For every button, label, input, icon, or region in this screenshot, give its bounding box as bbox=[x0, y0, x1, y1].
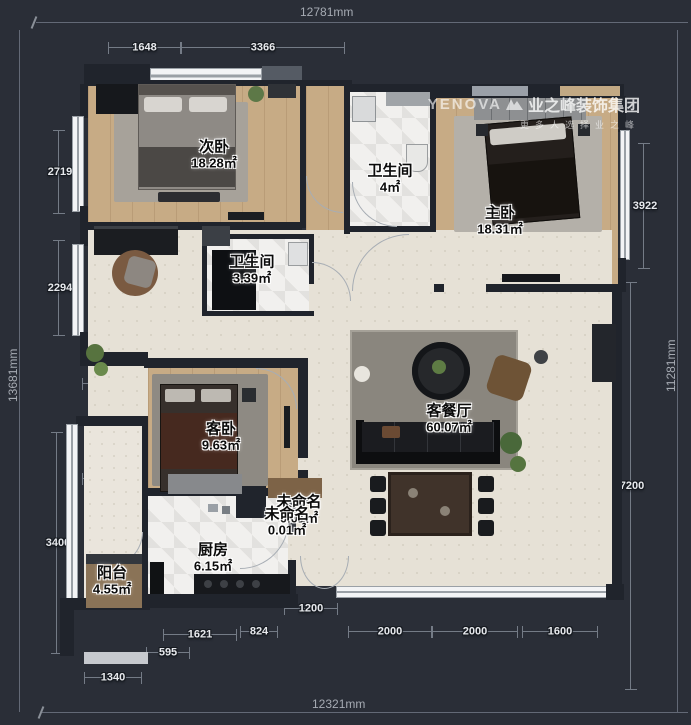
dim-segment[interactable]: 2719 bbox=[58, 130, 59, 214]
wall bbox=[472, 86, 528, 96]
plant[interactable] bbox=[86, 344, 104, 362]
bed-double[interactable] bbox=[138, 84, 236, 190]
dimline-bottom-total bbox=[42, 712, 688, 713]
total-dim-right: 11281mm bbox=[664, 340, 678, 392]
window bbox=[620, 130, 630, 260]
wall bbox=[486, 284, 622, 292]
dining-chair[interactable] bbox=[478, 476, 494, 492]
room-label-bathroom-mid: 卫生间 3.39㎡ bbox=[229, 254, 274, 287]
dim-segment[interactable]: 2000 bbox=[432, 631, 518, 632]
nightstand[interactable] bbox=[578, 124, 590, 136]
wall bbox=[80, 84, 88, 118]
dim-segment[interactable]: 3922 bbox=[643, 143, 644, 269]
room-label-master-bedroom: 主卧 18.31㎡ bbox=[477, 205, 523, 238]
dim-segment[interactable]: 595 bbox=[146, 652, 190, 653]
window bbox=[336, 586, 608, 598]
burner bbox=[204, 580, 212, 588]
dim-segment[interactable]: 3400 bbox=[56, 432, 57, 654]
burner bbox=[220, 580, 228, 588]
tableware bbox=[440, 506, 450, 516]
dim-segment[interactable]: 1600 bbox=[522, 631, 598, 632]
kitchen-item bbox=[222, 506, 230, 514]
floor-lamp[interactable] bbox=[354, 366, 370, 382]
pillow bbox=[201, 389, 231, 402]
sofa-back bbox=[362, 452, 494, 464]
wall bbox=[300, 84, 306, 228]
pillow bbox=[489, 123, 566, 146]
pillow bbox=[144, 97, 182, 112]
bed-bench[interactable] bbox=[158, 192, 220, 202]
tv-unit[interactable] bbox=[284, 406, 290, 448]
wall bbox=[148, 594, 298, 608]
dim-segment[interactable]: 2000 bbox=[348, 631, 432, 632]
wardrobe[interactable] bbox=[168, 474, 242, 494]
nightstand[interactable] bbox=[242, 388, 256, 402]
tableware bbox=[408, 488, 418, 498]
dim-segment[interactable]: 1200 bbox=[284, 608, 338, 609]
plant[interactable] bbox=[94, 362, 108, 376]
nightstand[interactable] bbox=[476, 124, 488, 136]
wall bbox=[560, 86, 620, 96]
pillow bbox=[165, 389, 195, 402]
wardrobe[interactable] bbox=[96, 84, 140, 114]
dimline-top-total bbox=[36, 22, 688, 23]
floorplan-canvas[interactable]: 12781mm 13681mm 11281mm 12321mm 1648 336… bbox=[0, 0, 691, 725]
dresser[interactable] bbox=[268, 84, 296, 98]
plant[interactable] bbox=[248, 86, 264, 102]
side-table[interactable] bbox=[534, 350, 548, 364]
room-label-living-dining: 客餐厅 60.07㎡ bbox=[426, 403, 472, 436]
burner bbox=[252, 580, 260, 588]
kitchen-counter[interactable] bbox=[194, 574, 290, 594]
dim-segment[interactable]: 7200 bbox=[630, 282, 631, 690]
room-label-balcony: 阳台 4.55㎡ bbox=[93, 565, 131, 598]
dim-segment[interactable]: 1648 bbox=[108, 47, 181, 48]
room-label-kitchen: 厨房 6.15㎡ bbox=[194, 542, 232, 575]
wall bbox=[202, 234, 207, 316]
window bbox=[72, 116, 84, 212]
dim-segment[interactable]: 824 bbox=[240, 631, 278, 632]
room-label-bathroom-top: 卫生间 4㎡ bbox=[367, 163, 412, 196]
room-label-secondary-bedroom: 次卧 18.28㎡ bbox=[191, 139, 237, 172]
wall bbox=[202, 311, 314, 316]
dim-segment[interactable]: 2294 bbox=[58, 240, 59, 336]
window bbox=[72, 244, 84, 336]
plant[interactable] bbox=[500, 432, 522, 454]
wall bbox=[618, 96, 626, 132]
wall bbox=[298, 358, 308, 458]
window bbox=[66, 424, 78, 600]
dining-chair[interactable] bbox=[370, 476, 386, 492]
kitchen-cabinet[interactable] bbox=[150, 562, 164, 594]
plant bbox=[432, 360, 446, 374]
dim-segment[interactable]: 3366 bbox=[181, 47, 345, 48]
pillow bbox=[189, 97, 227, 112]
wall bbox=[346, 226, 436, 232]
washing-machine[interactable] bbox=[352, 96, 376, 122]
dim-segment[interactable]: 1340 bbox=[84, 677, 142, 678]
wall-ledge bbox=[84, 652, 148, 664]
headboard bbox=[139, 85, 235, 95]
total-dim-left: 13681mm bbox=[6, 349, 20, 402]
wall bbox=[344, 84, 350, 234]
wall bbox=[60, 598, 74, 656]
kitchen-item bbox=[208, 504, 218, 512]
cabinet[interactable] bbox=[202, 226, 230, 246]
sideboard[interactable] bbox=[592, 324, 616, 382]
dim-segment[interactable]: 1621 bbox=[163, 634, 237, 635]
sofa-cushion bbox=[382, 426, 400, 438]
dining-chair[interactable] bbox=[370, 520, 386, 536]
dining-table[interactable] bbox=[388, 472, 472, 536]
dining-chair[interactable] bbox=[478, 520, 494, 536]
room-label-unnamed-2: 未命名 0.01㎡ bbox=[264, 506, 309, 539]
dining-chair[interactable] bbox=[478, 498, 494, 514]
room-label-guest-bedroom: 客卧 9.63㎡ bbox=[202, 421, 240, 454]
burner bbox=[236, 580, 244, 588]
total-dim-top: 12781mm bbox=[300, 5, 353, 19]
washbasin[interactable] bbox=[288, 242, 308, 266]
wall bbox=[430, 92, 436, 228]
wall bbox=[144, 358, 308, 368]
plant[interactable] bbox=[510, 456, 526, 472]
dining-chair[interactable] bbox=[370, 498, 386, 514]
wall bbox=[76, 416, 148, 426]
wall bbox=[142, 416, 148, 598]
vanity-counter[interactable] bbox=[386, 92, 430, 106]
tv-unit[interactable] bbox=[228, 212, 264, 220]
total-dim-bottom: 12321mm bbox=[312, 697, 365, 711]
wall bbox=[434, 284, 444, 292]
tv-unit[interactable] bbox=[502, 274, 560, 282]
wall bbox=[344, 84, 440, 92]
